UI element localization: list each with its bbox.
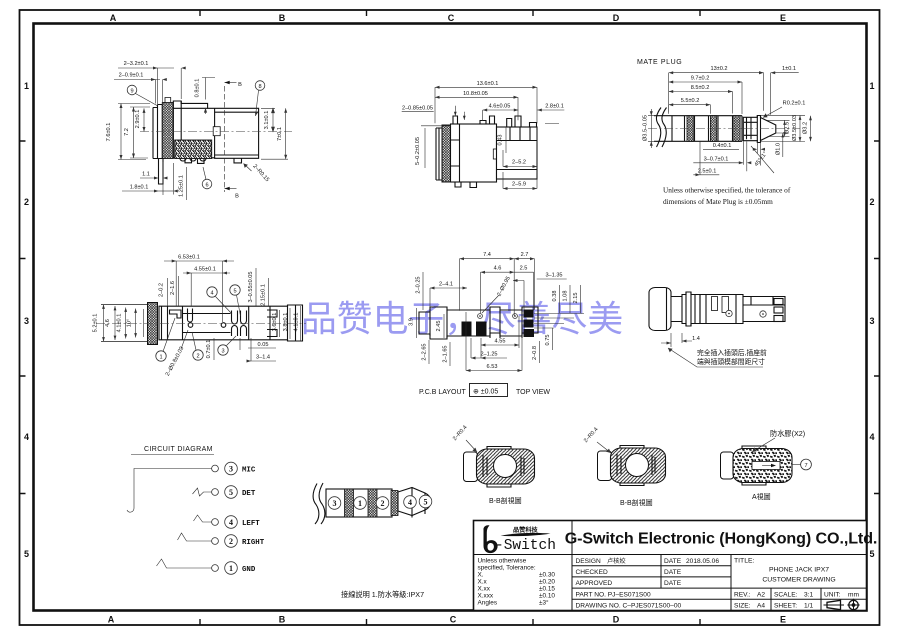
svg-text:0.4±0.1: 0.4±0.1	[713, 143, 732, 149]
svg-text:1: 1	[869, 81, 874, 91]
svg-text:3: 3	[869, 316, 874, 326]
svg-text:1: 1	[24, 81, 29, 91]
svg-text:4: 4	[210, 290, 213, 296]
svg-text:7.6±0.1: 7.6±0.1	[106, 123, 112, 142]
svg-text:1.25±0.1: 1.25±0.1	[179, 175, 185, 197]
svg-text:A: A	[108, 615, 115, 625]
svg-text:4: 4	[408, 498, 412, 507]
svg-text:5.5±0.2: 5.5±0.2	[681, 98, 700, 104]
svg-text:CIRCUIT DIAGRAM: CIRCUIT DIAGRAM	[144, 446, 213, 453]
svg-text:5: 5	[229, 488, 233, 497]
svg-text:TITLE:: TITLE:	[734, 558, 755, 565]
svg-text:7±0.1: 7±0.1	[277, 127, 283, 141]
svg-text:specified, Tolerance:: specified, Tolerance:	[478, 565, 536, 572]
svg-text:UNIT:: UNIT:	[824, 591, 841, 598]
svg-text:G-Switch Electronic (HongKong): G-Switch Electronic (HongKong) CO.,Ltd.	[565, 530, 878, 548]
svg-text:45°±1°: 45°±1°	[754, 151, 769, 168]
svg-text:接線説明 1.防水等級:IPX7: 接線説明 1.防水等級:IPX7	[341, 590, 424, 599]
svg-text:DESIGN: DESIGN	[576, 558, 602, 565]
svg-text:Unless otherwise: Unless otherwise	[478, 558, 527, 565]
svg-text:13±0.2: 13±0.2	[710, 66, 727, 72]
svg-text:Ø3.5–0.05: Ø3.5–0.05	[643, 115, 649, 141]
svg-text:1.08: 1.08	[563, 291, 569, 302]
svg-text:4.6: 4.6	[494, 266, 502, 272]
svg-text:B-B剖視圖: B-B剖視圖	[620, 498, 653, 507]
svg-text:4: 4	[229, 518, 233, 527]
svg-text:3.6±0.1: 3.6±0.1	[272, 313, 278, 332]
svg-text:E: E	[780, 615, 786, 625]
svg-text:4.1±0.1: 4.1±0.1	[117, 314, 123, 333]
svg-text:±0.20: ±0.20	[539, 579, 555, 586]
svg-text:MATE PLUG: MATE PLUG	[637, 59, 682, 66]
svg-text:防水膠(X2): 防水膠(X2)	[770, 429, 805, 438]
svg-text:品赞科技: 品赞科技	[513, 526, 539, 534]
svg-text:2–4.1: 2–4.1	[439, 282, 453, 288]
svg-text:5: 5	[24, 549, 29, 559]
svg-text:DATE: DATE	[664, 558, 682, 565]
svg-text:0.43: 0.43	[498, 135, 504, 146]
svg-text:3.8±0.1: 3.8±0.1	[283, 313, 289, 332]
svg-text:2–R0.4: 2–R0.4	[452, 425, 469, 442]
svg-text:A2: A2	[757, 591, 765, 598]
svg-text:4.1±0.1: 4.1±0.1	[294, 313, 300, 332]
svg-text:R0.2±0.1: R0.2±0.1	[783, 101, 806, 107]
svg-text:2.15: 2.15	[573, 293, 579, 304]
svg-text:A: A	[110, 13, 117, 23]
svg-text:Ø1.0: Ø1.0	[776, 143, 782, 155]
svg-text:3–1.35: 3–1.35	[545, 273, 562, 279]
svg-text:SCALE:: SCALE:	[774, 591, 798, 598]
svg-text:完全插入插頭后,插座前: 完全插入插頭后,插座前	[697, 348, 767, 357]
svg-text:X.: X.	[478, 572, 484, 579]
svg-text:X.xxx: X.xxx	[478, 593, 494, 600]
svg-text:2.7: 2.7	[521, 252, 529, 258]
svg-text:CHECKED: CHECKED	[576, 569, 608, 576]
svg-text:2.5: 2.5	[520, 266, 528, 272]
svg-text:7.2: 7.2	[124, 128, 130, 136]
svg-text:RIGHT: RIGHT	[242, 539, 265, 547]
svg-text:1±0.1: 1±0.1	[782, 66, 796, 72]
svg-text:0.7±0.1: 0.7±0.1	[206, 340, 212, 359]
svg-text:3.1±0.1: 3.1±0.1	[264, 111, 270, 130]
svg-text:mm: mm	[848, 591, 859, 598]
svg-text:DET: DET	[242, 490, 256, 498]
svg-text:MIC: MIC	[242, 467, 256, 475]
svg-text:PHONE JACK IPX7: PHONE JACK IPX7	[769, 567, 829, 574]
svg-text:REV.:: REV.:	[734, 591, 751, 598]
svg-text:C: C	[450, 615, 457, 625]
svg-text:1: 1	[159, 354, 162, 360]
svg-text:8.5±0.2: 8.5±0.2	[691, 85, 710, 91]
svg-text:端與插頭模部間距尺寸: 端與插頭模部間距尺寸	[697, 357, 765, 366]
svg-text:1.8±0.1: 1.8±0.1	[130, 185, 149, 191]
svg-text:2–0.9±0.1: 2–0.9±0.1	[119, 73, 144, 79]
svg-text:2–0.25: 2–0.25	[416, 276, 422, 293]
svg-text:Unless otherwise specified, th: Unless otherwise specified, the toleranc…	[663, 186, 791, 195]
svg-text:13.6±0.1: 13.6±0.1	[477, 81, 499, 87]
svg-text:5.2±0.1: 5.2±0.1	[93, 314, 99, 333]
svg-text:0.38: 0.38	[552, 291, 558, 302]
svg-text:Ø3.2: Ø3.2	[803, 122, 809, 134]
svg-text:⊕ ±0.05: ⊕ ±0.05	[473, 389, 498, 396]
svg-text:P.C.B LAYOUT: P.C.B LAYOUT	[419, 389, 467, 396]
svg-text:2018.05.06: 2018.05.06	[686, 558, 719, 565]
svg-text:D: D	[613, 13, 620, 23]
svg-text:D: D	[613, 615, 620, 625]
svg-text:A4: A4	[757, 603, 765, 610]
svg-text:4: 4	[24, 432, 29, 442]
svg-text:5: 5	[869, 549, 874, 559]
svg-text:2.15±0.1: 2.15±0.1	[261, 284, 267, 306]
svg-text:2: 2	[229, 537, 233, 546]
svg-text:4.6: 4.6	[105, 319, 111, 327]
svg-text:X.x: X.x	[478, 579, 488, 586]
svg-text:C: C	[448, 13, 455, 23]
svg-text:Angles: Angles	[478, 600, 498, 607]
svg-text:1: 1	[229, 564, 233, 573]
svg-text:4: 4	[869, 432, 874, 442]
svg-text:2–0.85±0.05: 2–0.85±0.05	[402, 105, 433, 111]
svg-text:1.1: 1.1	[142, 172, 150, 178]
svg-text:0.05: 0.05	[258, 342, 269, 348]
svg-text:±0.10: ±0.10	[539, 593, 555, 600]
svg-text:4.55±0.1: 4.55±0.1	[194, 267, 216, 273]
svg-text:B: B	[238, 82, 242, 88]
svg-text:2–1.6: 2–1.6	[170, 281, 176, 295]
svg-text:3.9: 3.9	[409, 318, 415, 326]
svg-text:10°: 10°	[127, 319, 133, 327]
svg-text:5–0.2±0.05: 5–0.2±0.05	[415, 137, 421, 165]
svg-text:2–Ø0.8±0.03: 2–Ø0.8±0.03	[165, 346, 185, 377]
svg-text:2.9±0.1: 2.9±0.1	[135, 110, 141, 129]
svg-text:8: 8	[258, 84, 261, 90]
svg-text:9.7±0.2: 9.7±0.2	[691, 76, 710, 82]
svg-text:4.55: 4.55	[495, 339, 506, 345]
svg-text:6.53±0.1: 6.53±0.1	[178, 255, 200, 261]
svg-text:DRAWING NO. C–PJES071S00–00: DRAWING NO. C–PJES071S00–00	[576, 603, 682, 610]
svg-text:E: E	[780, 13, 786, 23]
svg-text:9: 9	[130, 88, 133, 94]
svg-text:2–0.8: 2–0.8	[532, 346, 538, 360]
svg-text:1.4: 1.4	[692, 336, 700, 342]
svg-text:±3°: ±3°	[539, 599, 549, 607]
svg-text:2.8±0.1: 2.8±0.1	[545, 104, 564, 110]
svg-text:3: 3	[333, 499, 337, 508]
svg-text:2: 2	[381, 499, 385, 508]
svg-text:2.45: 2.45	[436, 321, 442, 332]
svg-text:SHEET:: SHEET:	[774, 603, 797, 610]
svg-text:B-B剖視圖: B-B剖視圖	[489, 496, 522, 505]
svg-text:2–1.65: 2–1.65	[443, 345, 449, 362]
svg-text:-Switch: -Switch	[495, 538, 556, 554]
svg-text:2–R0.15: 2–R0.15	[251, 163, 270, 183]
svg-text:B: B	[279, 13, 286, 23]
svg-text:6: 6	[205, 182, 208, 188]
svg-text:5: 5	[424, 498, 428, 507]
svg-text:DATE: DATE	[664, 580, 682, 587]
svg-text:2–1.25: 2–1.25	[480, 352, 497, 358]
svg-text:7: 7	[804, 463, 807, 469]
svg-text:X.xx: X.xx	[478, 586, 491, 593]
svg-text:±0.30: ±0.30	[539, 572, 555, 579]
svg-text:3: 3	[229, 464, 233, 473]
svg-text:2–3.2±0.1: 2–3.2±0.1	[124, 61, 149, 67]
svg-text:3: 3	[24, 316, 29, 326]
svg-text:B: B	[235, 194, 239, 200]
svg-text:PART NO. PJ–ES071S00: PART NO. PJ–ES071S00	[576, 591, 651, 598]
svg-text:3: 3	[221, 348, 224, 354]
svg-text:APPROVED: APPROVED	[576, 580, 613, 587]
svg-text:2–R0.4: 2–R0.4	[583, 427, 600, 444]
svg-text:3:1: 3:1	[804, 591, 813, 598]
svg-text:2–5.9: 2–5.9	[512, 182, 526, 188]
svg-text:0.75: 0.75	[545, 335, 551, 346]
svg-text:A視圖: A視圖	[752, 492, 771, 501]
svg-text:2–Ø0.95: 2–Ø0.95	[496, 276, 511, 298]
svg-text:GND: GND	[242, 566, 256, 574]
svg-text:2: 2	[196, 353, 199, 359]
svg-text:Ø3.5±0.03: Ø3.5±0.03	[792, 115, 798, 141]
svg-text:6.53: 6.53	[487, 364, 498, 370]
svg-text:3–0.55±0.05: 3–0.55±0.05	[248, 271, 254, 302]
svg-text:2: 2	[24, 197, 29, 207]
svg-text:4.6±0.05: 4.6±0.05	[489, 104, 511, 110]
svg-text:SIZE:: SIZE:	[734, 603, 751, 610]
svg-text:TOP VIEW: TOP VIEW	[516, 389, 550, 396]
svg-text:10.8±0.05: 10.8±0.05	[463, 91, 488, 97]
svg-text:7.4: 7.4	[483, 252, 491, 258]
svg-text:2–5.2: 2–5.2	[512, 160, 526, 166]
svg-text:B: B	[279, 615, 286, 625]
svg-text:CUSTOMER DRAWING: CUSTOMER DRAWING	[762, 577, 835, 584]
svg-text:dimensions of Mate Plug is ±0.: dimensions of Mate Plug is ±0.05mm	[663, 197, 773, 206]
svg-text:±0.15: ±0.15	[539, 586, 555, 593]
svg-text:卢核姣: 卢核姣	[607, 557, 626, 565]
svg-text:2.5±0.1: 2.5±0.1	[698, 168, 717, 174]
svg-text:5: 5	[233, 288, 236, 294]
svg-text:2: 2	[869, 197, 874, 207]
svg-text:3–0.7±0.1: 3–0.7±0.1	[704, 156, 729, 162]
svg-text:1: 1	[358, 499, 362, 508]
svg-text:DATE: DATE	[664, 569, 682, 576]
svg-text:2–2.65: 2–2.65	[422, 343, 428, 360]
svg-text:LEFT: LEFT	[242, 520, 260, 528]
svg-text:1/1: 1/1	[804, 603, 813, 610]
svg-text:0.8±0.1: 0.8±0.1	[195, 79, 201, 98]
svg-text:3–1.4: 3–1.4	[256, 355, 270, 361]
svg-text:2–0.2: 2–0.2	[159, 283, 165, 297]
